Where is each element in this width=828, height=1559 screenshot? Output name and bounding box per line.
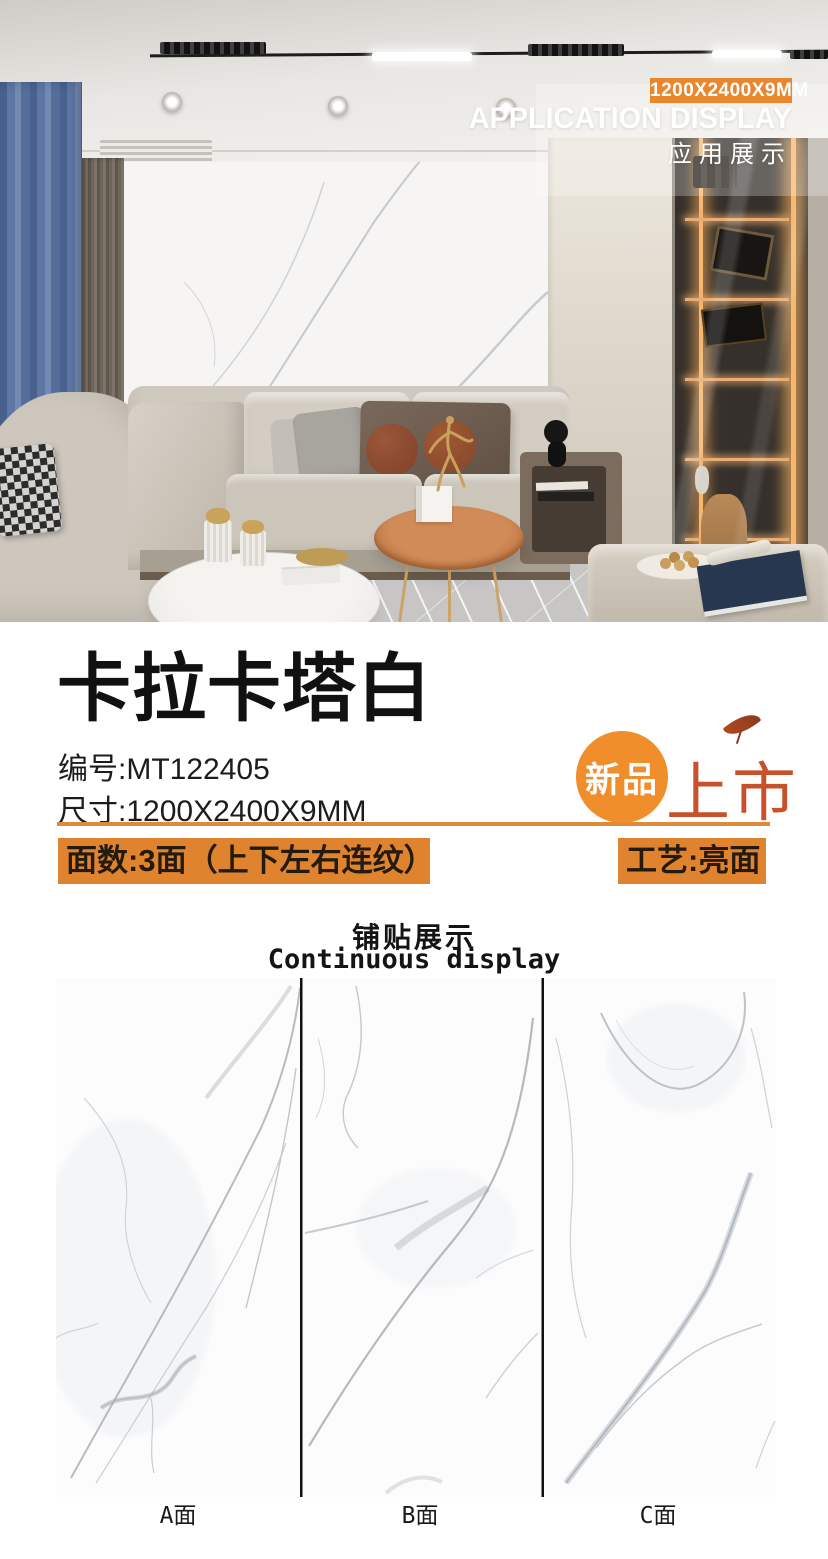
track-light-lit — [712, 50, 782, 58]
panel-label-a: A面 — [160, 1496, 197, 1530]
gold-dancer-figurine — [420, 412, 480, 496]
houndstooth-pillow — [0, 443, 62, 537]
tile-divider — [542, 978, 545, 1497]
gold-bowl — [296, 548, 348, 566]
new-product-badge-circle: 新品 — [576, 731, 668, 823]
track-light-lit — [372, 52, 472, 61]
panel-label-b: B面 — [402, 1496, 439, 1530]
black-figurine — [548, 441, 566, 467]
decor-jar — [240, 530, 266, 566]
rust-round-cushion — [366, 424, 418, 476]
faces-spec-box: 面数:3面（上下左右连纹） — [58, 838, 430, 884]
application-photo: 1200X2400X9MM APPLICATION DISPLAY 应用展示 — [0, 0, 828, 622]
product-code-label: 编号: — [58, 753, 126, 786]
track-light-bar — [160, 42, 266, 54]
orange-table-leg — [448, 570, 451, 622]
gold-jar-topper — [206, 508, 230, 524]
decor-jar — [204, 520, 232, 562]
tile-continuous-display — [56, 978, 776, 1497]
recessed-spotlight — [162, 92, 182, 112]
size-badge: 1200X2400X9MM — [650, 78, 792, 103]
finish-spec-box: 工艺:亮面 — [618, 838, 766, 884]
side-table-recess — [532, 466, 606, 552]
gold-jar-topper — [242, 520, 264, 534]
hero-title-zh: 应用展示 — [492, 134, 792, 169]
product-code-line: 编号:MT122405 — [58, 744, 270, 788]
display-title-en: Continuous display — [0, 944, 828, 975]
product-poster: 1200X2400X9MM APPLICATION DISPLAY 应用展示 卡… — [0, 0, 828, 1559]
track-light-bar — [790, 50, 828, 59]
new-product-badge-text: 上市 — [666, 742, 798, 834]
panel-label-c: C面 — [640, 1496, 677, 1530]
hero-title-en: APPLICATION DISPLAY — [389, 102, 792, 136]
coffee-table-books — [282, 564, 341, 585]
side-table-books — [538, 492, 594, 501]
product-name: 卡拉卡塔白 — [57, 648, 432, 729]
recessed-spotlight — [328, 96, 348, 116]
track-light-bar — [528, 44, 624, 56]
tile-divider — [300, 978, 303, 1497]
product-code-value: MT122405 — [126, 753, 269, 786]
leaf-icon — [723, 707, 762, 743]
cookies — [660, 558, 671, 569]
accent-underline — [57, 822, 770, 826]
